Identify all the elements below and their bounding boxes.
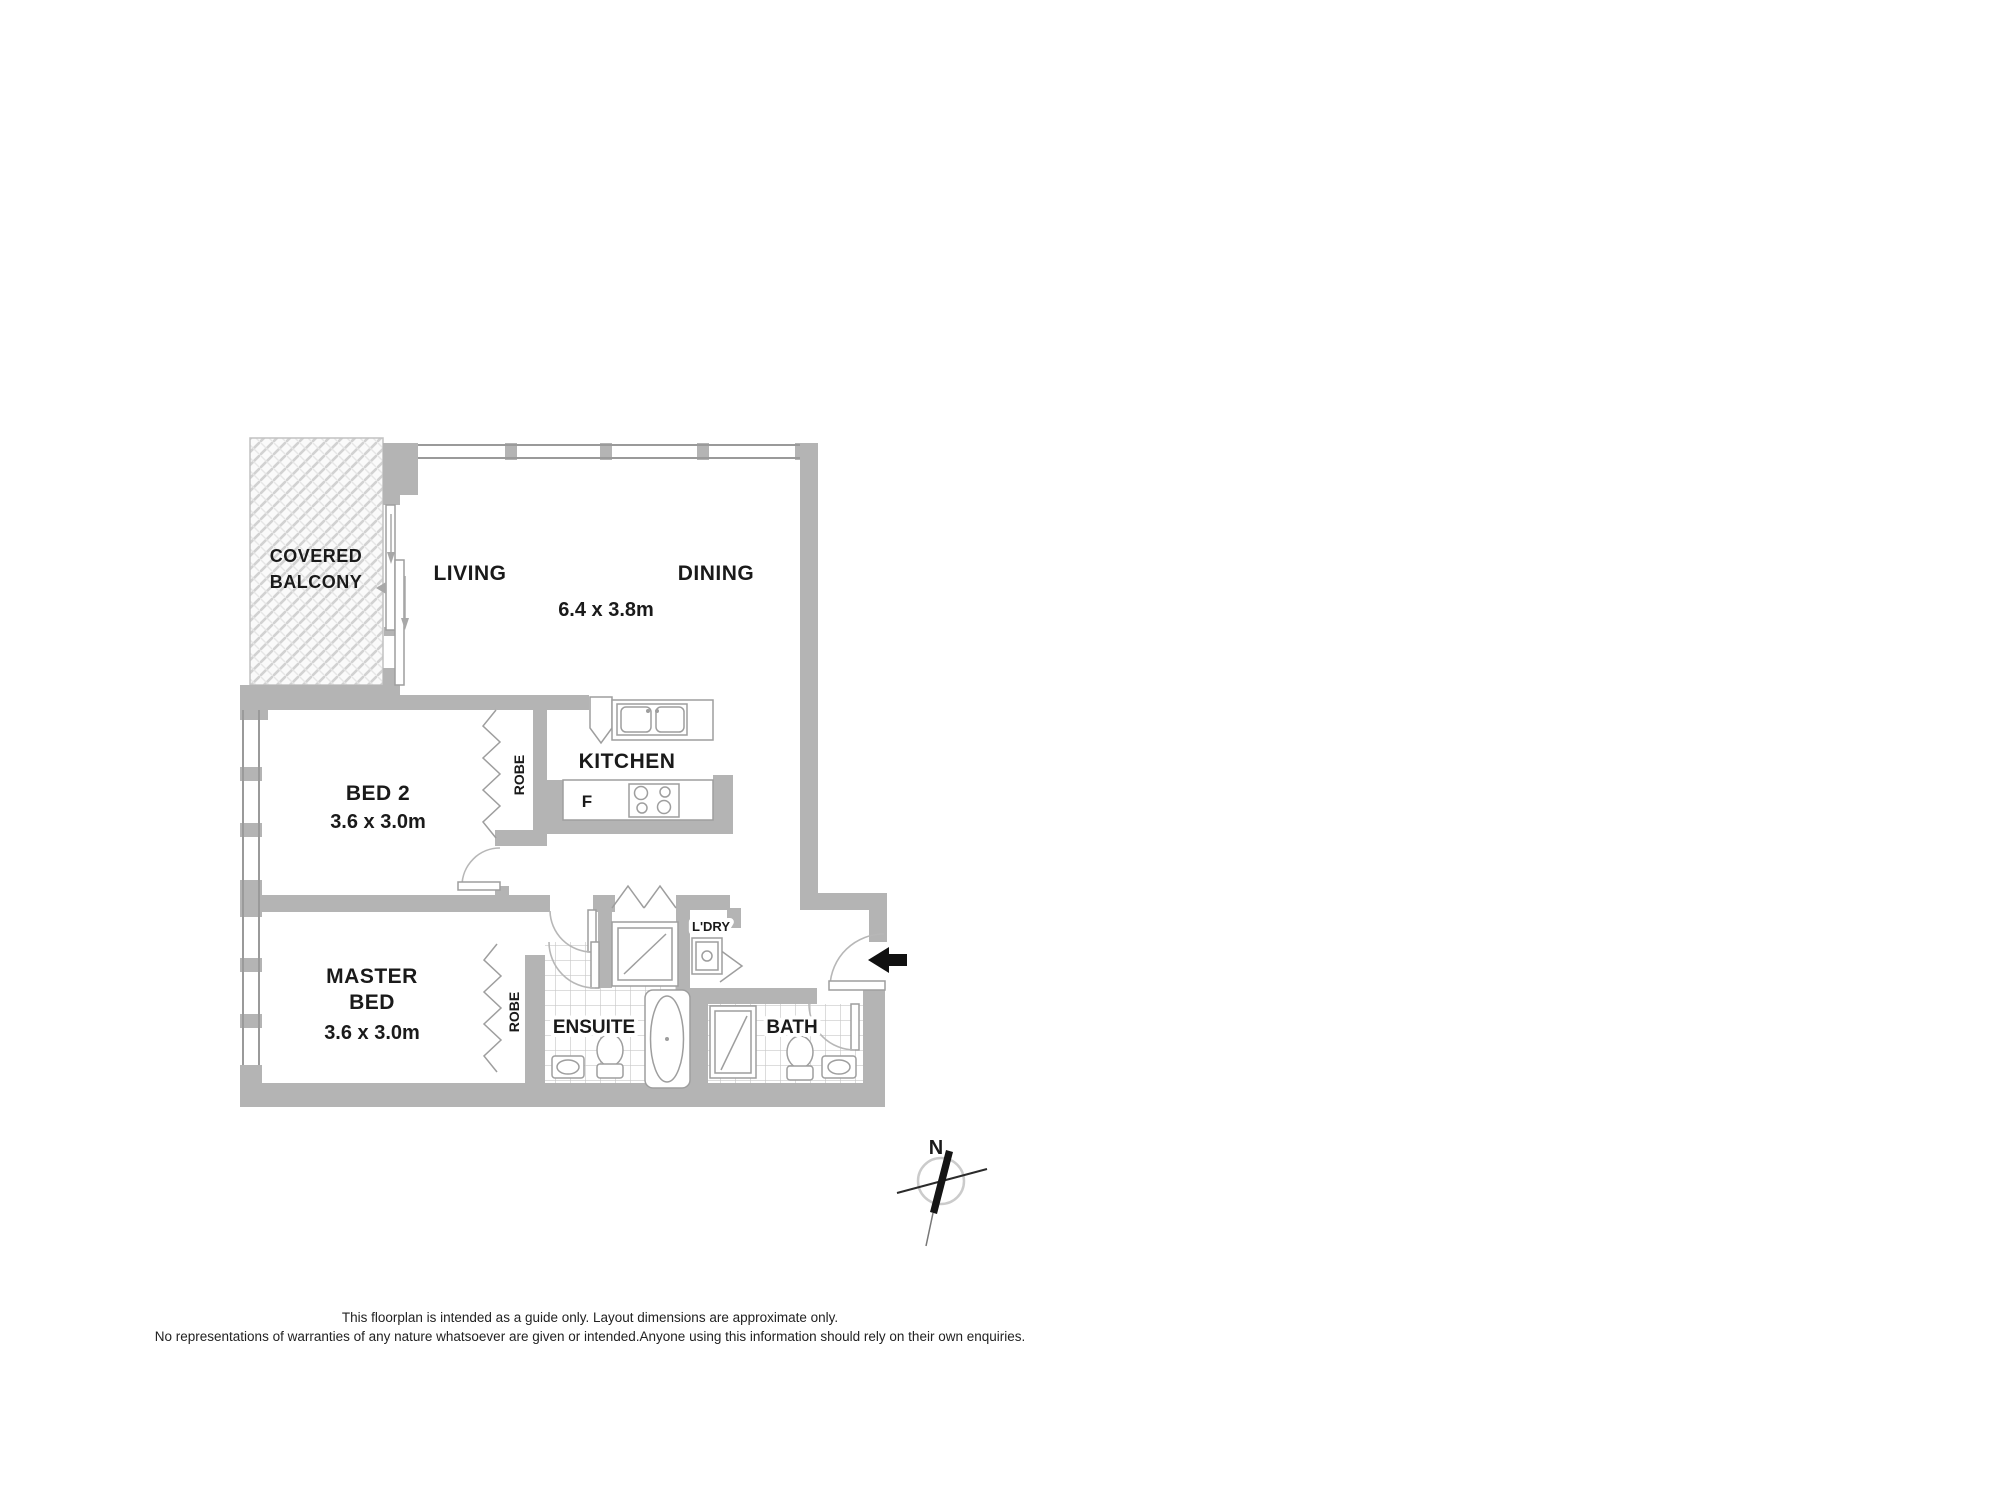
bed2-robe-rail: [483, 710, 500, 838]
master-robe-label: ROBE: [506, 992, 522, 1032]
master-bed-label-line2: BED: [349, 991, 395, 1014]
sink-tap-icon: [646, 709, 650, 713]
master-robe-rail: [484, 944, 501, 1072]
bath-toilet: [787, 1036, 813, 1068]
bath-toilet-tank: [787, 1066, 813, 1080]
floorplan-page: N COVERED BALCONY LIVING DINING 6.4 x 3.…: [0, 0, 2000, 1500]
ensuite-toilet: [597, 1034, 623, 1066]
dining-label: DINING: [678, 562, 755, 585]
balcony-label-line2: BALCONY: [270, 572, 363, 592]
kitchen-label: KITCHEN: [579, 750, 676, 773]
entry-door-leaf: [829, 981, 885, 990]
ensuite-label: ENSUITE: [553, 1017, 635, 1038]
entry-arrow-icon: [868, 947, 907, 973]
fridge-label: F: [582, 792, 592, 811]
bath-door-leaf: [851, 1004, 859, 1050]
compass: N: [897, 1137, 987, 1246]
compass-needle-tail: [926, 1213, 933, 1246]
compass-north-label: N: [929, 1137, 943, 1159]
floorplan-svg: N COVERED BALCONY LIVING DINING 6.4 x 3.…: [0, 0, 2000, 1500]
living-label: LIVING: [433, 562, 506, 585]
closet-bifold-door: [644, 886, 676, 908]
bed2-door-arc: [462, 848, 500, 886]
disclaimer-line2: No representations of warranties of any …: [155, 1329, 1026, 1344]
ensuite-door-leaf: [591, 942, 599, 988]
bed2-robe-label: ROBE: [511, 755, 527, 795]
kitchen-counter: [612, 700, 713, 740]
ensuite-toilet-tank: [597, 1064, 623, 1078]
laundry-door: [720, 950, 742, 982]
bed2-dimensions: 3.6 x 3.0m: [330, 811, 426, 833]
bathtub-drain-icon: [665, 1037, 669, 1041]
laundry-fixtures: [692, 938, 722, 974]
bed2-door-leaf: [458, 882, 500, 890]
bed2-label: BED 2: [346, 782, 410, 805]
sink-tap-icon: [655, 709, 659, 713]
bath-label: BATH: [766, 1017, 817, 1038]
living-dining-dimensions: 6.4 x 3.8m: [558, 599, 654, 621]
closet-bifold-door: [612, 886, 644, 908]
disclaimer-line1: This floorplan is intended as a guide on…: [342, 1310, 838, 1325]
master-bed-label-line1: MASTER: [326, 965, 418, 988]
bath-shower: [710, 1006, 756, 1078]
kitchen-door: [590, 697, 612, 743]
balcony-label-line1: COVERED: [270, 546, 363, 566]
master-bed-dimensions: 3.6 x 3.0m: [324, 1022, 420, 1044]
disclaimer: This floorplan is intended as a guide on…: [155, 1310, 1026, 1344]
laundry-label: L'DRY: [692, 919, 730, 934]
